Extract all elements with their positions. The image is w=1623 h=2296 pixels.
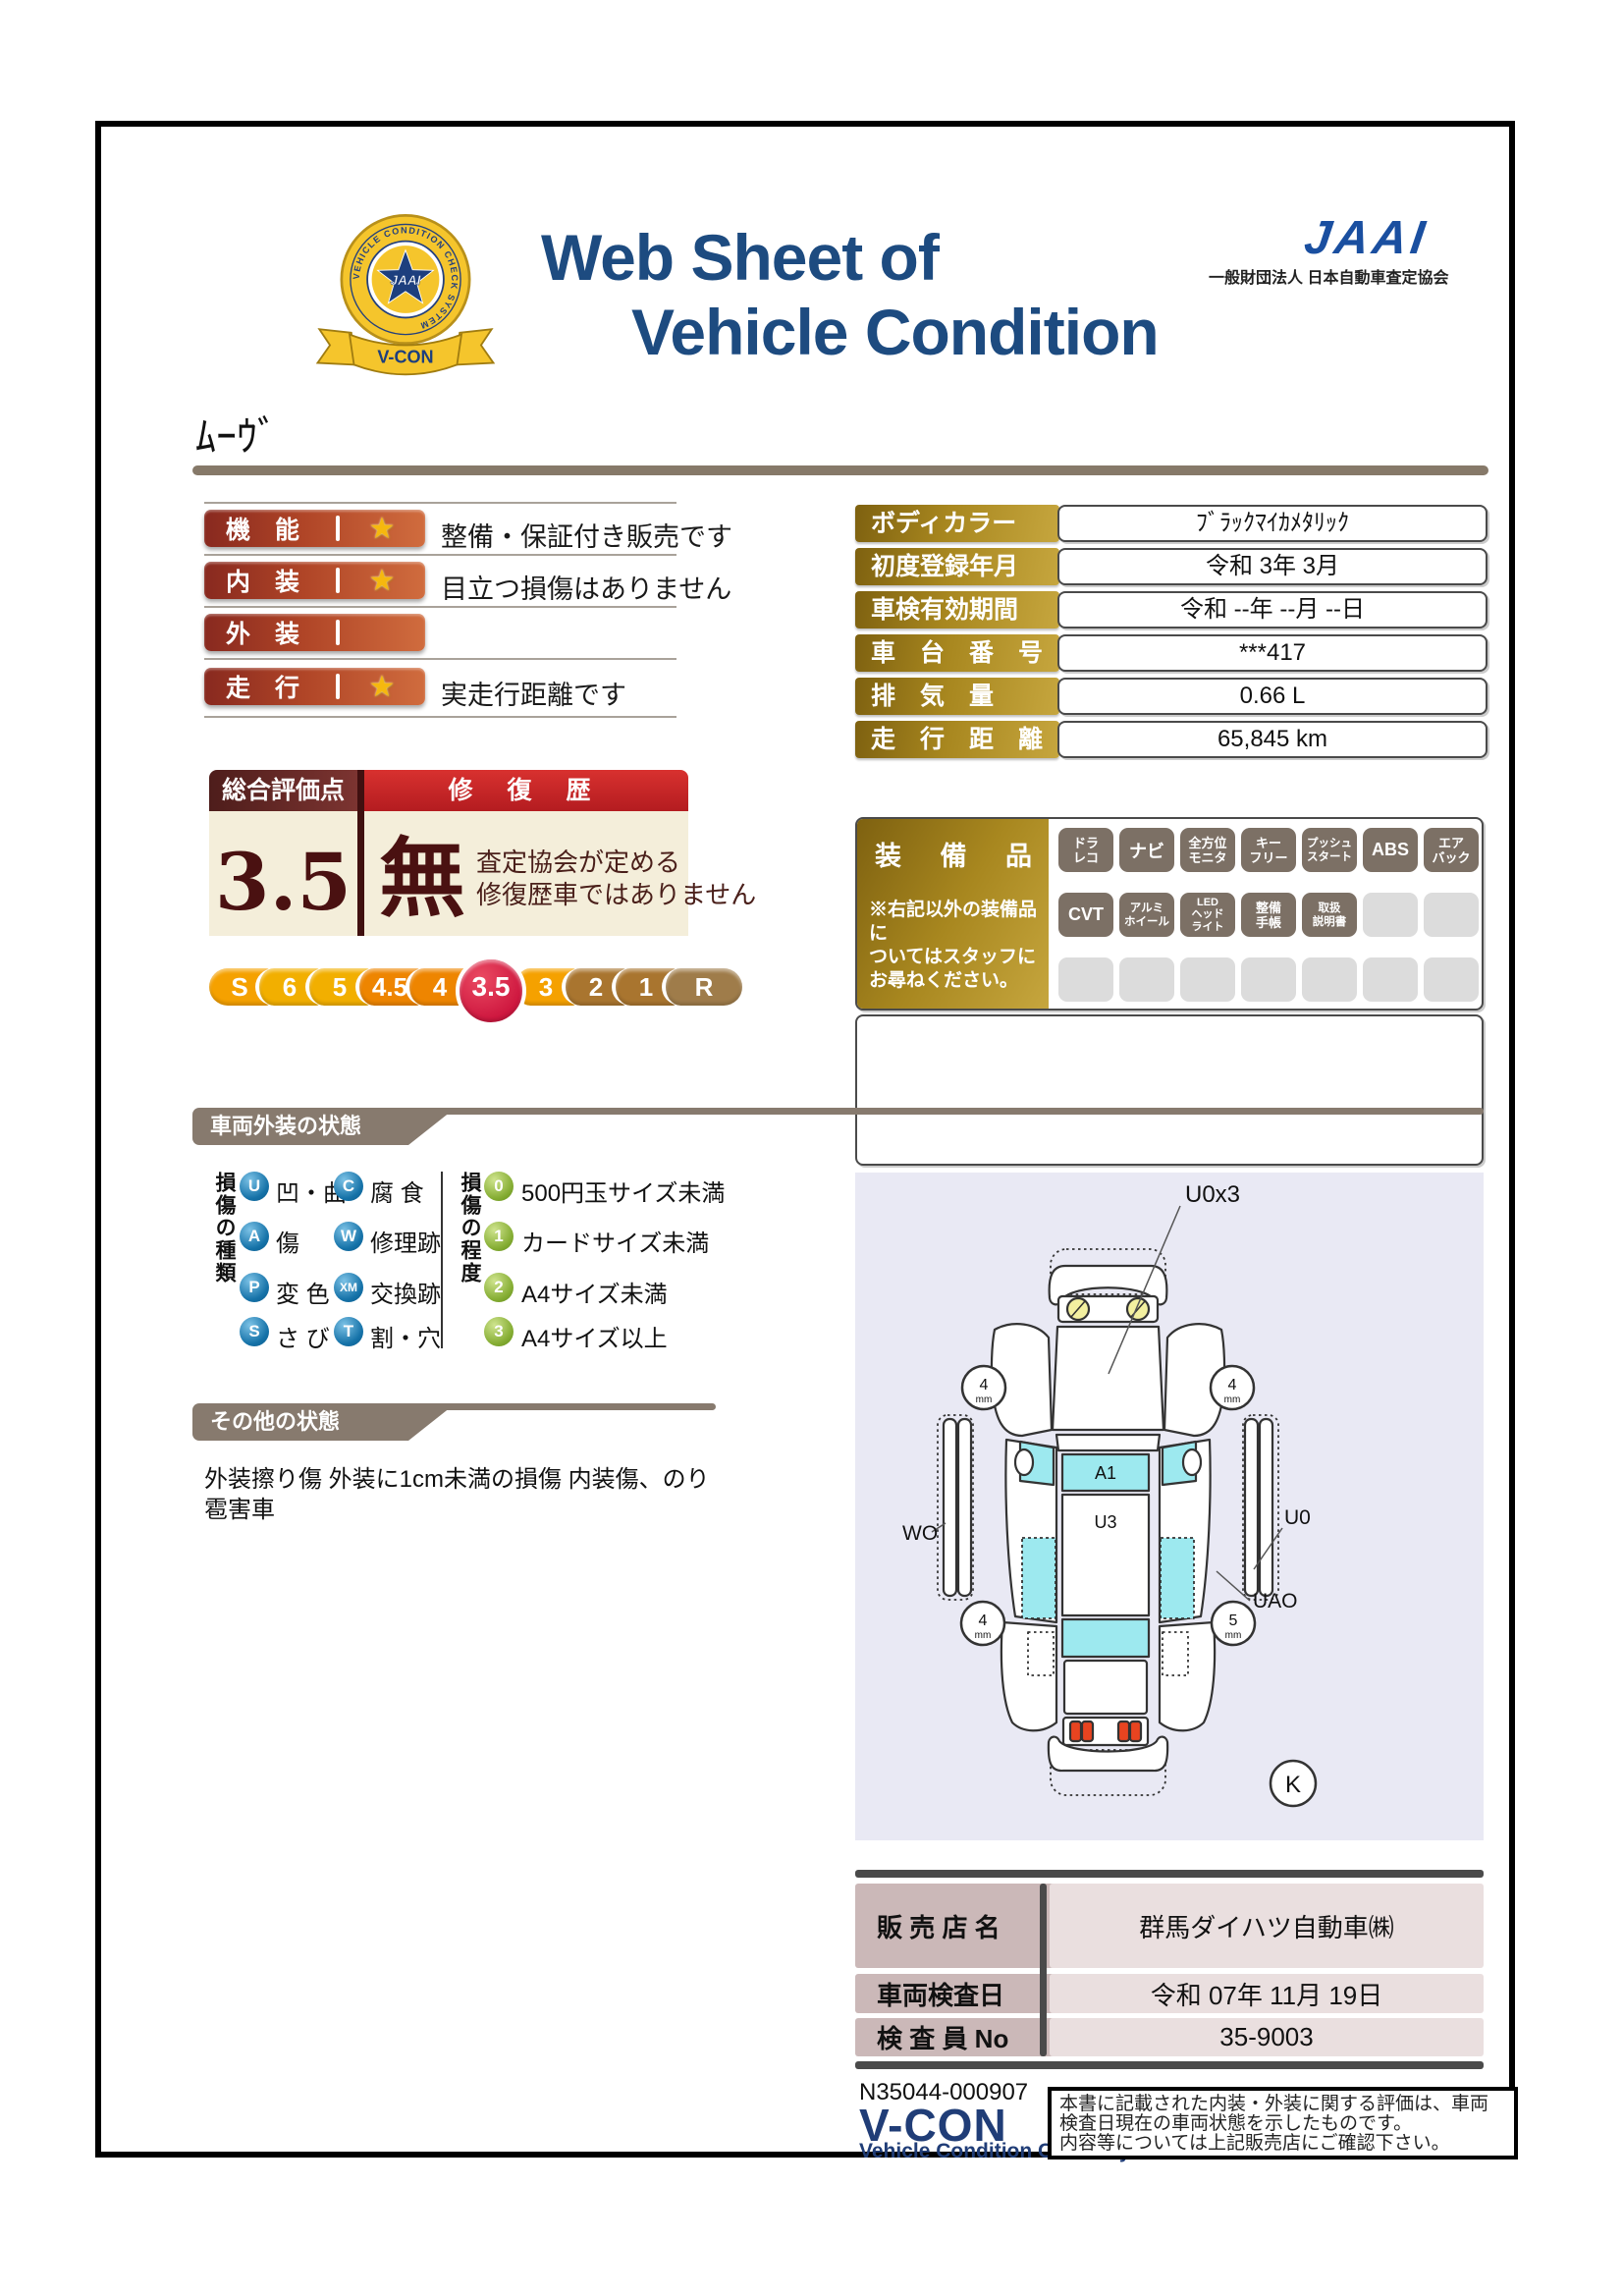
- overall-score-value: 3.5: [209, 836, 357, 928]
- rating-description: 目立つ損傷はありません: [441, 568, 731, 606]
- exterior-banner-line: [396, 1108, 1484, 1115]
- dealer-table-bottom-bar: [855, 2061, 1484, 2069]
- detail-label: ボディカラー: [855, 505, 1059, 542]
- damage-type-icon: C: [334, 1172, 363, 1201]
- detail-value: 令和 --年 --月 --日: [1057, 591, 1488, 629]
- equipment-header: 装 備 品 ※右記以外の装備品に ついてはスタッフに お尋ねください。: [857, 819, 1049, 1009]
- overall-divider: [357, 770, 364, 936]
- star-icon: ★: [340, 512, 424, 546]
- jaai-subtitle: 一般財団法人 日本自動車査定協会: [1209, 264, 1448, 288]
- dealer-table-top-bar: [855, 1870, 1484, 1878]
- dealer-table-divider: [1040, 1884, 1047, 2056]
- damage-degree-label: A4サイズ以上: [521, 1319, 668, 1353]
- tire-depth-unit: mm: [975, 1630, 992, 1641]
- equipment-badge-empty: [1058, 957, 1113, 1002]
- star-icon: ★: [340, 670, 424, 704]
- damage-diagram-panel: U0x3 A1 U3 WO U0 UAO K 4 mm 4 mm 4 mm 5 …: [855, 1173, 1484, 1840]
- damage-degree-label: A4サイズ未満: [521, 1275, 668, 1309]
- rating-label: 走 行: [226, 669, 336, 704]
- page-title-line1: Web Sheet of: [541, 221, 939, 294]
- legend-divider: [441, 1172, 443, 1348]
- empty-notes-box: [855, 1014, 1484, 1166]
- rating-separator: [204, 502, 676, 504]
- jaai-logo: JAAI: [1301, 211, 1432, 265]
- equipment-badge-empty: [1180, 957, 1235, 1002]
- equipment-badge: 全方位 モニタ: [1180, 828, 1235, 872]
- tire-depth-rear-left: 4: [979, 1613, 988, 1629]
- equipment-badge: 取扱 説明書: [1302, 893, 1357, 937]
- other-condition-line2: 雹害車: [204, 1495, 715, 1525]
- equipment-badge: CVT: [1058, 893, 1113, 937]
- detail-value: ﾌﾞﾗｯｸﾏｲｶﾒﾀﾘｯｸ: [1057, 505, 1488, 542]
- ribbon-text: V-CON: [377, 348, 433, 367]
- equipment-badge-empty: [1363, 957, 1418, 1002]
- damage-degree-icon: 2: [484, 1273, 514, 1302]
- tire-depth-front-left: 4: [980, 1377, 989, 1394]
- rating-label: 機 能: [226, 511, 336, 546]
- equipment-badge: キー フリー: [1241, 828, 1296, 872]
- diagram-label-u3: U3: [1094, 1512, 1116, 1532]
- tire-depth-front-right: 4: [1228, 1377, 1237, 1394]
- dealer-value: 群馬ダイハツ自動車㈱: [1050, 1884, 1484, 1968]
- rating-label: 外 装: [226, 615, 336, 650]
- detail-value: 0.66 L: [1057, 678, 1488, 715]
- disclaimer-line2: 検査日現在の車両状態を示したものです。: [1059, 2114, 1506, 2134]
- dealer-label: 販 売 店 名: [855, 1884, 1058, 1968]
- equipment-badge: LED ヘッド ライト: [1180, 893, 1235, 937]
- diagram-label-uao: UAO: [1253, 1590, 1298, 1613]
- detail-value: ***417: [1057, 634, 1488, 672]
- damage-type-label: 腐 食: [370, 1174, 424, 1208]
- dealer-label: 検 査 員 No: [855, 2018, 1058, 2056]
- damage-type-icon: W: [334, 1222, 363, 1251]
- detail-label: 走 行 距 離: [855, 721, 1059, 758]
- diagram-label-k: K: [1285, 1772, 1301, 1798]
- damage-type-icon: P: [240, 1273, 269, 1302]
- equipment-badge: ナビ: [1119, 828, 1174, 872]
- damage-type-label: さ び: [276, 1319, 330, 1353]
- disclaimer-line3: 内容等については上記販売店にご確認下さい。: [1059, 2134, 1506, 2154]
- damage-type-icon: S: [240, 1317, 269, 1346]
- damage-kind-header: 損傷の種類: [209, 1172, 239, 1348]
- equipment-badge-empty: [1302, 957, 1357, 1002]
- rating-bar-mileage: 走 行 ★: [204, 668, 425, 705]
- equipment-note-line1: ※右記以外の装備品に: [869, 899, 1049, 946]
- damage-type-icon: T: [334, 1317, 363, 1346]
- equipment-badge-empty: [1241, 957, 1296, 1002]
- rating-divider: [336, 620, 340, 645]
- tire-depth-unit: mm: [1224, 1394, 1241, 1405]
- diagram-label-a1: A1: [1095, 1463, 1116, 1483]
- overall-score-header: 総合評価点: [209, 770, 357, 811]
- other-condition-text: 外装擦り傷 外装に1cm未満の損傷 内装傷、のり 雹害車: [204, 1464, 715, 1525]
- detail-label: 排 気 量: [855, 678, 1059, 715]
- dealer-value: 令和 07年 11月 19日: [1050, 1974, 1484, 2013]
- equipment-panel: 装 備 品 ※右記以外の装備品に ついてはスタッフに お尋ねください。 ドラ レ…: [855, 817, 1484, 1011]
- dealer-label: 車両検査日: [855, 1974, 1058, 2013]
- damage-type-label: 変 色: [276, 1275, 330, 1309]
- damage-degree-icon: 3: [484, 1317, 514, 1346]
- repair-note-line2: 修復歴車ではありません: [476, 879, 756, 911]
- tire-depth-unit: mm: [1225, 1630, 1242, 1641]
- rating-bar-interior: 内 装 ★: [204, 562, 425, 599]
- detail-value: 65,845 km: [1057, 721, 1488, 758]
- detail-value: 令和 3年 3月: [1057, 548, 1488, 585]
- repair-history-header: 修 復 歴: [364, 770, 688, 811]
- equipment-note-line3: お尋ねください。: [869, 969, 1049, 993]
- equipment-note-line2: ついてはスタッフに: [869, 946, 1049, 969]
- damage-degree-label: 500円玉サイズ未満: [521, 1174, 725, 1208]
- repair-history-note: 査定協会が定める 修復歴車ではありません: [476, 847, 756, 911]
- detail-label: 初度登録年月: [855, 548, 1059, 585]
- equipment-badges: ドラ レコ ナビ 全方位 モニタ キー フリー プッシュ スタート ABS エア…: [1058, 828, 1479, 1002]
- damage-type-icon: A: [240, 1222, 269, 1251]
- diagram-label-u0: U0: [1284, 1506, 1311, 1529]
- equipment-badge: エア バック: [1424, 828, 1479, 872]
- equipment-badge-empty: [1363, 893, 1418, 937]
- repair-note-line1: 査定協会が定める: [476, 847, 756, 879]
- page-title-line2: Vehicle Condition: [631, 295, 1159, 369]
- equipment-badge-empty: [1424, 957, 1479, 1002]
- rating-label: 内 装: [226, 563, 336, 598]
- equipment-badge: プッシュ スタート: [1302, 828, 1357, 872]
- equipment-title: 装 備 品: [875, 835, 1049, 873]
- repair-history-value: 無: [379, 836, 465, 922]
- other-section-banner: その他の状態: [192, 1403, 456, 1441]
- damage-type-label: 傷: [276, 1224, 299, 1258]
- equipment-note: ※右記以外の装備品に ついてはスタッフに お尋ねください。: [869, 899, 1049, 993]
- rating-scale: S 6 5 4.5 4 3.5 3 2 1 R: [209, 968, 742, 1026]
- equipment-badge: 整備 手帳: [1241, 893, 1296, 937]
- vcon-emblem: VEHICLE CONDITION CHECK SYSTEM JAAI V-CO…: [312, 195, 499, 392]
- vehicle-condition-sheet: VEHICLE CONDITION CHECK SYSTEM JAAI V-CO…: [95, 121, 1515, 2158]
- rating-separator: [204, 658, 676, 660]
- equipment-badge: ドラ レコ: [1058, 828, 1113, 872]
- disclaimer-box: 本書に記載された内装・外装に関する評価は、車両 検査日現在の車両状態を示したもの…: [1048, 2087, 1518, 2159]
- equipment-badge-empty: [1119, 957, 1174, 1002]
- screenshot-root: { "header": { "title1": "Web Sheet of", …: [0, 0, 1623, 2296]
- damage-type-label: 修理跡: [370, 1224, 441, 1258]
- dealer-value: 35-9003: [1050, 2018, 1484, 2056]
- page-title: Web Sheet of Vehicle Condition: [541, 220, 1159, 369]
- rating-separator: [204, 554, 676, 556]
- diagram-label-wo: WO: [902, 1522, 938, 1545]
- damage-degree-icon: 1: [484, 1222, 514, 1251]
- rating-separator: [204, 716, 676, 718]
- detail-label: 車 台 番 号: [855, 634, 1059, 672]
- damage-type-icon: XM: [334, 1273, 363, 1302]
- scale-segment: R: [662, 968, 742, 1006]
- vehicle-name: ﾑｰｳﾞ: [195, 404, 278, 464]
- rating-bar-function: 機 能 ★: [204, 510, 425, 547]
- rating-description: 実走行距離です: [441, 674, 626, 712]
- equipment-badge: アルミ ホイール: [1119, 893, 1174, 937]
- tire-depth-unit: mm: [976, 1394, 993, 1405]
- emblem-center-text: JAAI: [391, 273, 421, 288]
- diagram-label-u0x3: U0x3: [1185, 1181, 1240, 1208]
- rating-description: 整備・保証付き販売です: [441, 516, 732, 554]
- tire-depth-rear-right: 5: [1229, 1613, 1238, 1629]
- header-divider: [192, 465, 1488, 475]
- disclaimer-line1: 本書に記載された内装・外装に関する評価は、車両: [1059, 2095, 1506, 2114]
- other-condition-line1: 外装擦り傷 外装に1cm未満の損傷 内装傷、のり: [204, 1464, 715, 1495]
- damage-degree-header: 損傷の程度: [455, 1172, 484, 1348]
- rating-bar-exterior: 外 装: [204, 614, 425, 651]
- equipment-badge: ABS: [1363, 828, 1418, 872]
- damage-degree-label: カードサイズ未満: [521, 1224, 709, 1258]
- scale-segment-active: 3.5: [456, 956, 526, 1026]
- detail-label: 車検有効期間: [855, 591, 1059, 629]
- star-icon: ★: [340, 564, 424, 598]
- damage-degree-icon: 0: [484, 1172, 514, 1201]
- rating-separator: [204, 606, 676, 608]
- equipment-badge-empty: [1424, 893, 1479, 937]
- damage-type-icon: U: [240, 1172, 269, 1201]
- exterior-section-banner: 車両外装の状態: [192, 1108, 456, 1145]
- damage-type-label: 交換跡: [370, 1275, 441, 1309]
- car-diagram: U0x3 A1 U3 WO U0 UAO K 4 mm 4 mm 4 mm 5 …: [855, 1173, 1484, 1840]
- damage-type-label: 割・穴: [370, 1319, 441, 1353]
